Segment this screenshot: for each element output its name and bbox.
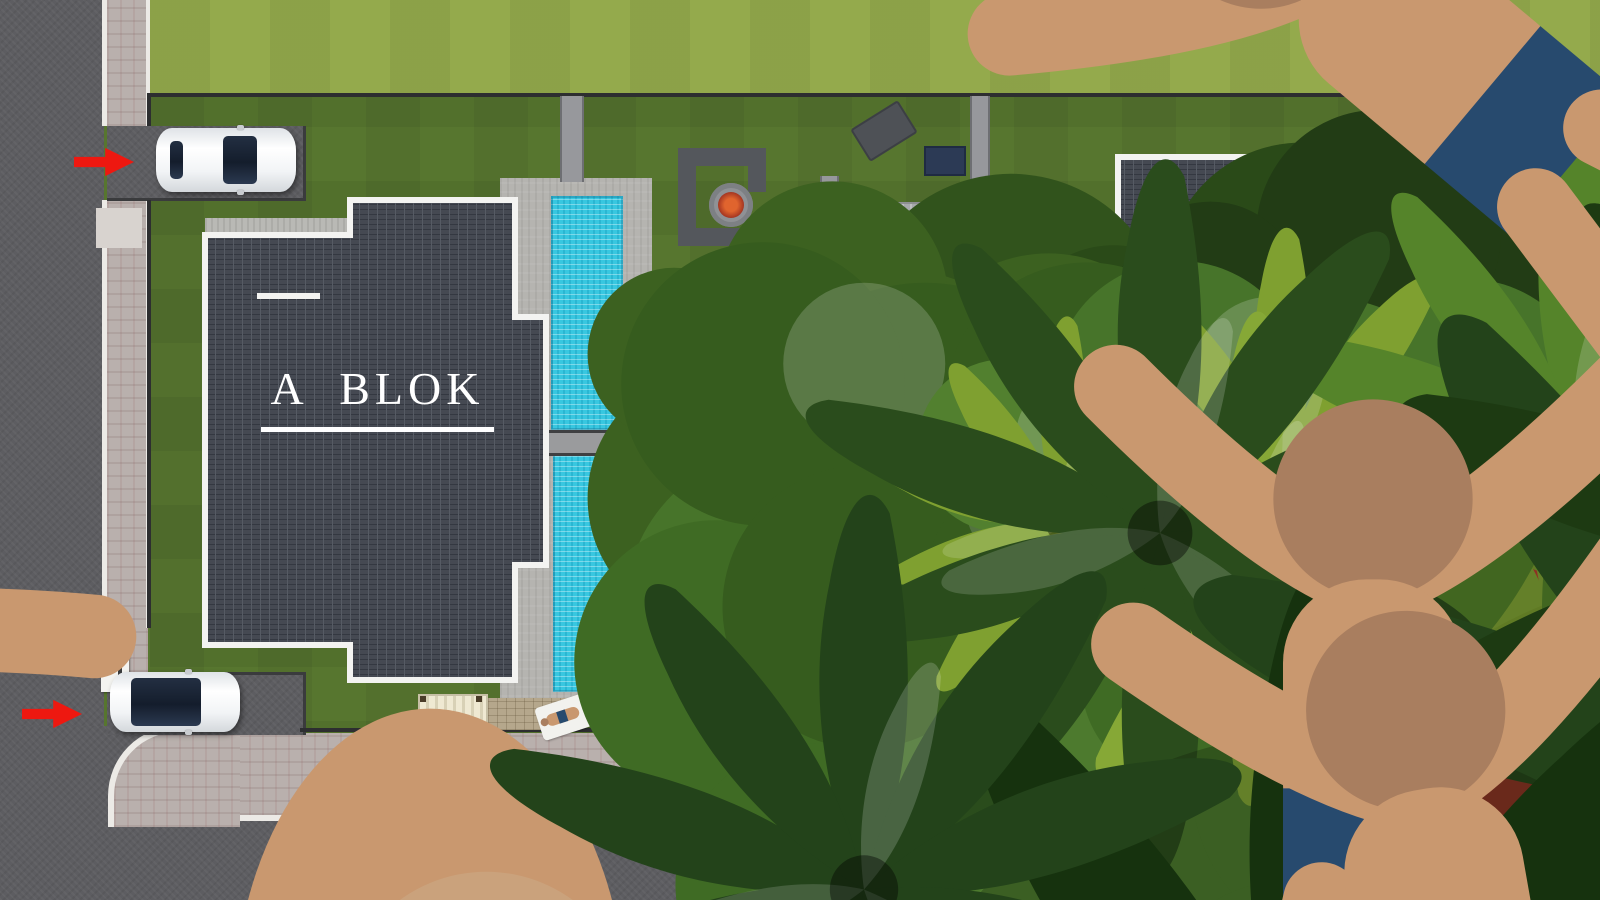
car-mirror <box>185 669 192 674</box>
b-blok-roof <box>628 309 1030 690</box>
gate-pillar <box>1520 720 1544 737</box>
gate-pillar <box>786 722 810 739</box>
site-plan: A BLOK B BLOK C BLOK <box>0 0 1600 900</box>
a-blok-label: A BLOK <box>205 362 550 432</box>
car-mirror <box>237 125 244 130</box>
a-blok-roof <box>205 200 546 680</box>
car-mirror <box>237 190 244 195</box>
gate-pillar <box>836 722 860 739</box>
car-mirror <box>185 730 192 735</box>
c-blok-label-text: C BLOK <box>1197 352 1402 422</box>
car-windshield <box>223 136 257 185</box>
car-white-sedan-top-left <box>156 128 296 192</box>
c-blok-label: C BLOK <box>1135 352 1465 422</box>
a-blok-label-text: A BLOK <box>261 362 495 432</box>
b-blok-label: B BLOK <box>655 408 1000 480</box>
car-white-suv-bottom-left <box>110 672 240 732</box>
car-windshield <box>131 678 201 726</box>
car-rear-window <box>170 141 183 179</box>
gate-pillar <box>1474 720 1498 737</box>
b-blok-label-text: B BLOK <box>721 408 934 480</box>
